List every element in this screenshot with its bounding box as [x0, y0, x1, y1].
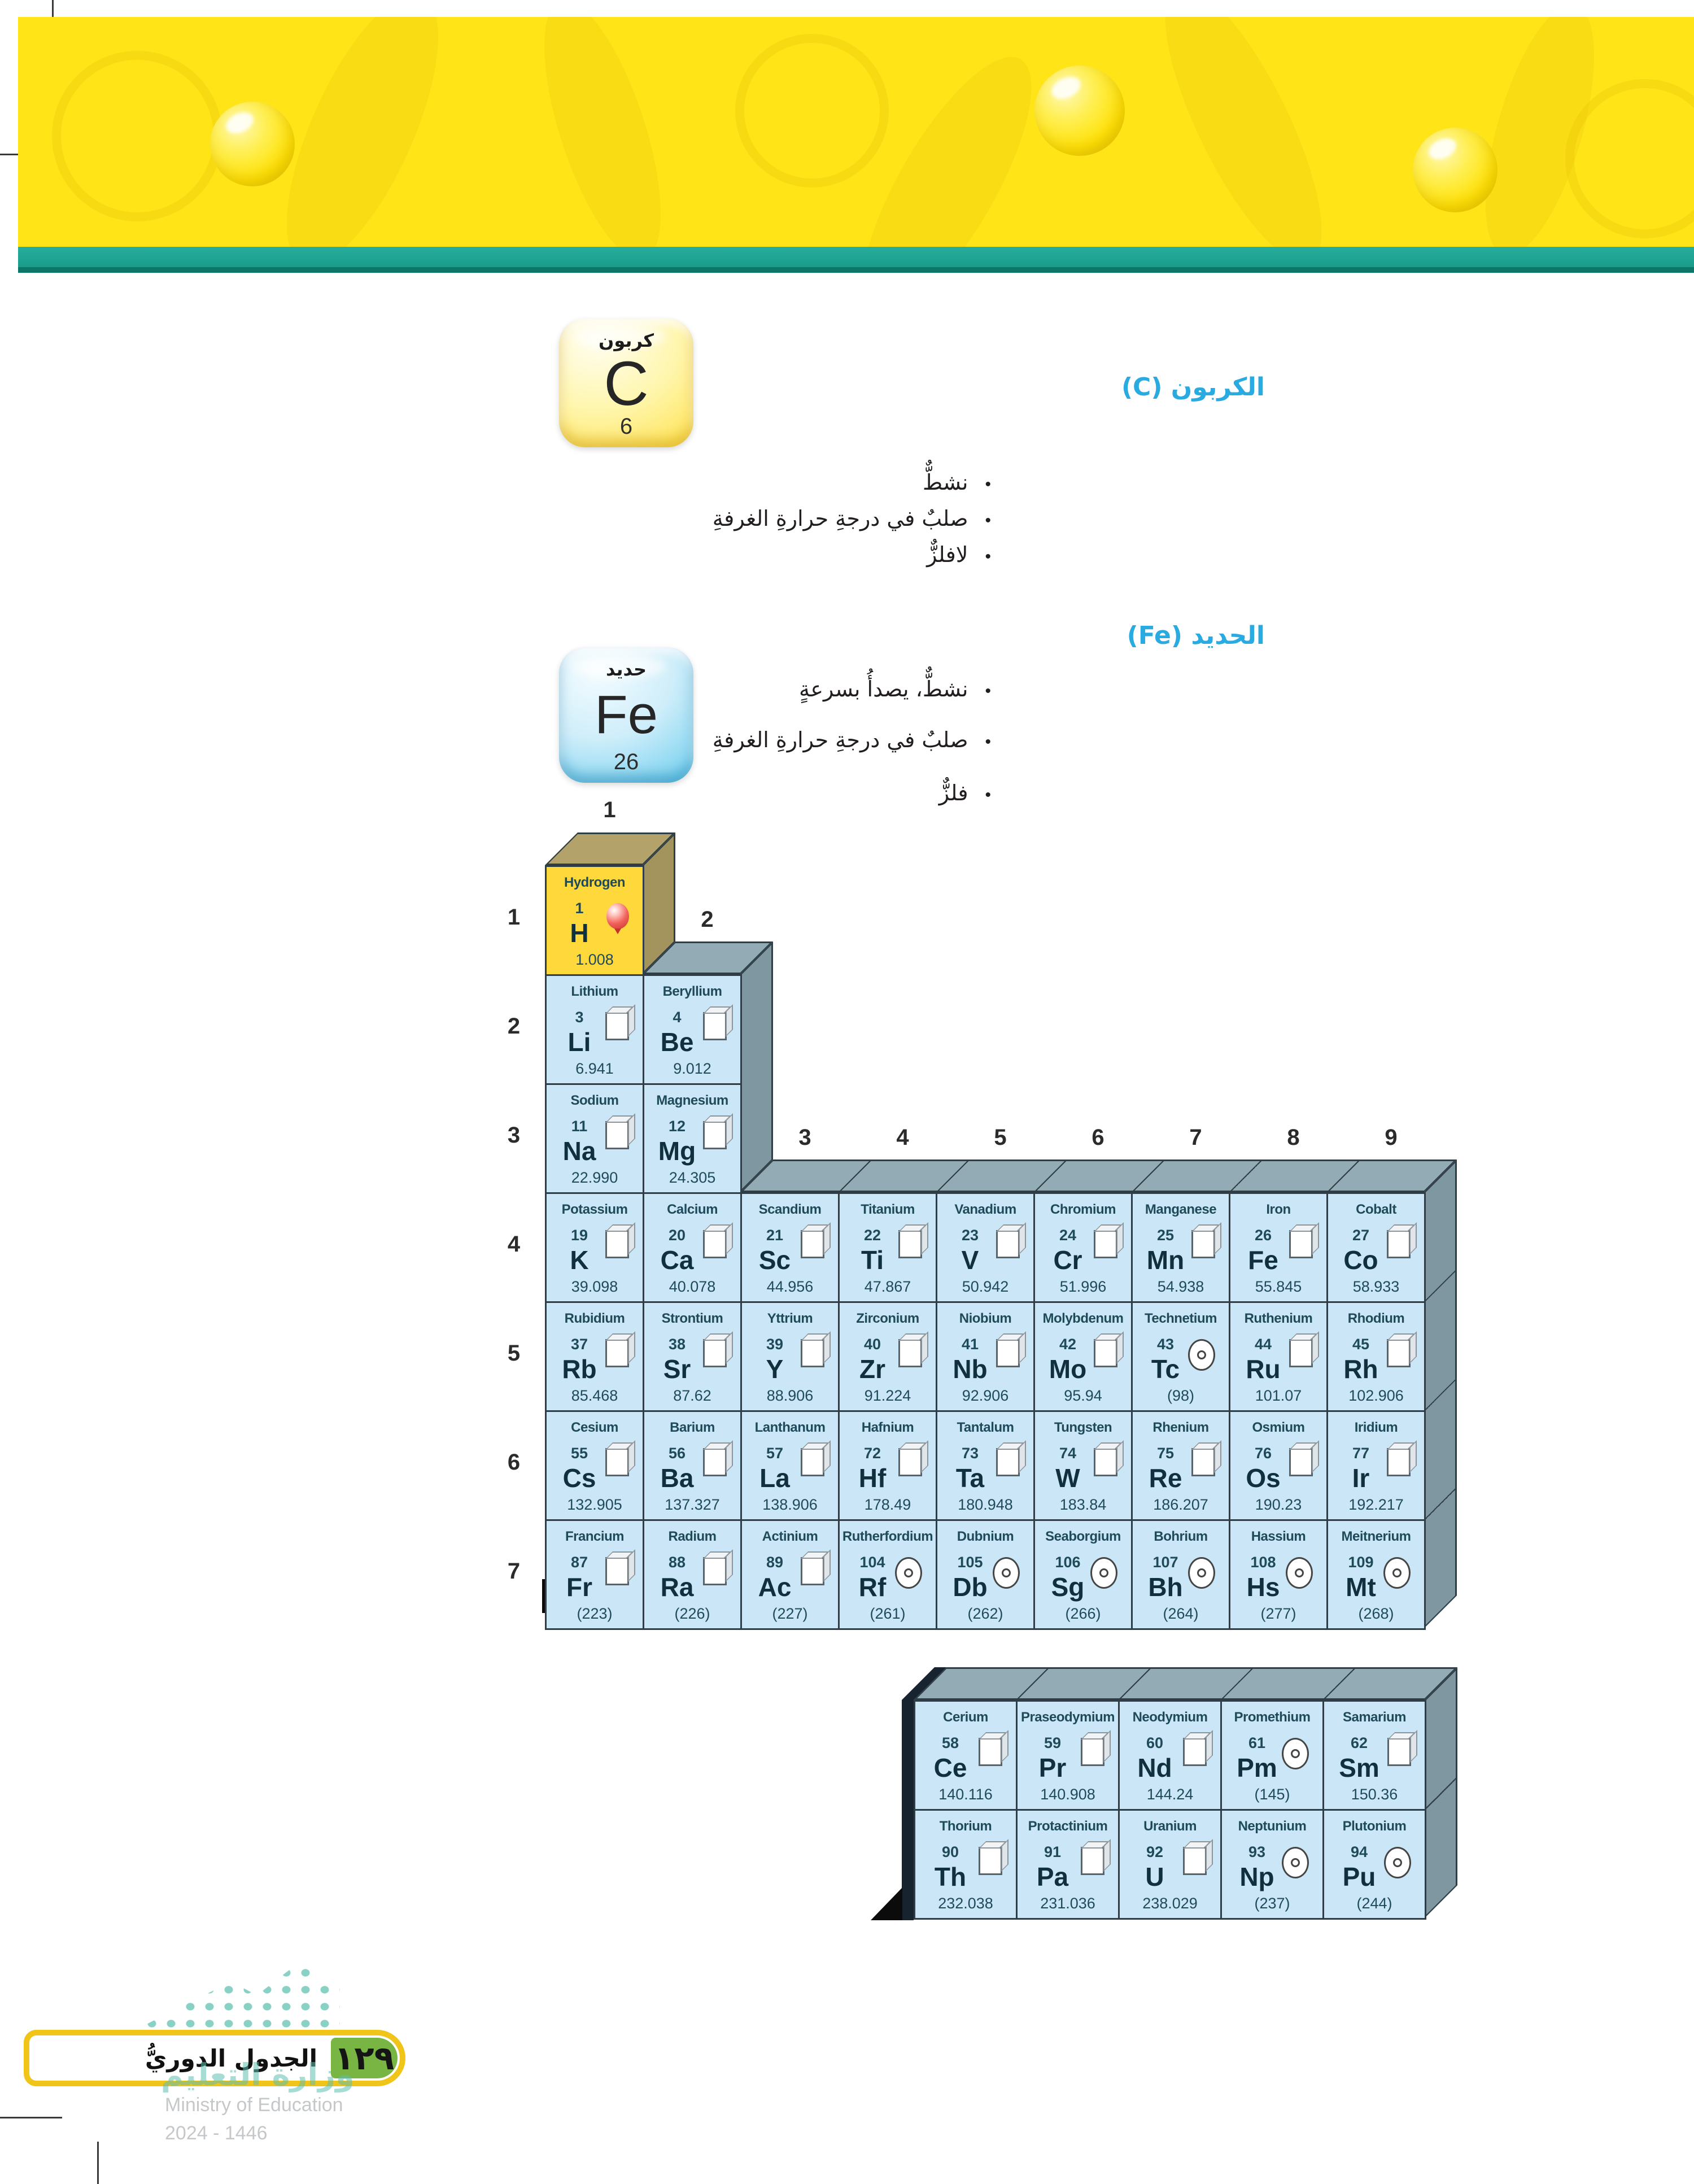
solid-cube-icon — [898, 1230, 922, 1258]
element-cell-V: Vanadium23V50.942 — [936, 1192, 1035, 1303]
inner-series-side-face — [1425, 1667, 1457, 1918]
element-symbol: Ir — [1328, 1463, 1394, 1493]
atomic-number: 24 — [1035, 1227, 1101, 1244]
element-symbol: K — [547, 1245, 612, 1275]
element-cell-U: Uranium92U238.029 — [1118, 1809, 1222, 1920]
atomic-number: 1 — [547, 900, 612, 917]
atomic-number: 74 — [1035, 1445, 1101, 1462]
atomic-mass: (264) — [1133, 1605, 1229, 1623]
atomic-number: 40 — [840, 1336, 905, 1353]
atomic-number: 25 — [1133, 1227, 1198, 1244]
solid-cube-icon — [801, 1448, 824, 1476]
atomic-mass: 150.36 — [1324, 1786, 1425, 1803]
atomic-mass: 238.029 — [1120, 1895, 1220, 1912]
element-symbol: Os — [1230, 1463, 1296, 1493]
element-name: Praseodymium — [1018, 1710, 1118, 1725]
element-symbol: La — [742, 1463, 807, 1493]
element-cell-Ir: Iridium77Ir192.217 — [1326, 1410, 1426, 1521]
element-cell-Pm: Promethium61Pm(145) — [1220, 1700, 1324, 1811]
solid-cube-icon — [605, 1230, 629, 1258]
element-name: Dubnium — [937, 1529, 1033, 1545]
solid-cube-icon — [605, 1012, 629, 1040]
solid-cube-icon — [1183, 1738, 1207, 1766]
element-cell-Mn: Manganese25Mn54.938 — [1131, 1192, 1230, 1303]
element-symbol: Ti — [840, 1245, 905, 1275]
element-name: Chromium — [1035, 1202, 1131, 1218]
atomic-mass: (223) — [547, 1605, 643, 1623]
element-name: Actinium — [742, 1529, 838, 1545]
atomic-mass: 186.207 — [1133, 1496, 1229, 1514]
atomic-number: 37 — [547, 1336, 612, 1353]
synthetic-bullseye-icon — [1282, 1847, 1309, 1878]
element-symbol: Rb — [547, 1354, 612, 1384]
element-cell-Pu: Plutonium94Pu(244) — [1322, 1809, 1426, 1920]
atomic-mass: 88.906 — [742, 1387, 838, 1405]
element-symbol: Pr — [1018, 1753, 1088, 1783]
element-symbol: Re — [1133, 1463, 1198, 1493]
atomic-number: 88 — [644, 1554, 710, 1571]
element-name: Uranium — [1120, 1819, 1220, 1834]
solid-cube-icon — [1191, 1448, 1215, 1476]
atomic-mass: 92.906 — [937, 1387, 1033, 1405]
solid-cube-icon — [703, 1012, 727, 1040]
atomic-number: 73 — [937, 1445, 1003, 1462]
element-cell-K: Potassium19K39.098 — [545, 1192, 644, 1303]
element-symbol: Nd — [1120, 1753, 1190, 1783]
atomic-mass: 132.905 — [547, 1496, 643, 1514]
element-cell-Co: Cobalt27Co58.933 — [1326, 1192, 1426, 1303]
atomic-number: 91 — [1018, 1843, 1088, 1861]
solid-cube-icon — [996, 1339, 1020, 1367]
solid-cube-icon — [1094, 1230, 1117, 1258]
atomic-number: 19 — [547, 1227, 612, 1244]
element-symbol: Np — [1222, 1862, 1292, 1892]
solid-cube-icon — [1387, 1230, 1411, 1258]
atomic-number: 93 — [1222, 1843, 1292, 1861]
group-label-3: 3 — [788, 1125, 822, 1150]
element-name: Lithium — [547, 984, 643, 1000]
synthetic-bullseye-icon — [1188, 1557, 1215, 1589]
element-symbol: Pa — [1018, 1862, 1088, 1892]
ministry-watermark-arabic: وزارة التعليم — [161, 2057, 355, 2093]
atomic-number: 39 — [742, 1336, 807, 1353]
element-cell-Ta: Tantalum73Ta180.948 — [936, 1410, 1035, 1521]
solid-cube-icon — [1191, 1230, 1215, 1258]
element-symbol: Zr — [840, 1354, 905, 1384]
atomic-mass: 24.305 — [644, 1169, 740, 1187]
atomic-number: 55 — [547, 1445, 612, 1462]
element-symbol: Cs — [547, 1463, 612, 1493]
element-cell-Be: Beryllium4Be9.012 — [643, 974, 742, 1085]
element-cell-Sm: Samarium62Sm150.36 — [1322, 1700, 1426, 1811]
atomic-number: 72 — [840, 1445, 905, 1462]
element-symbol: V — [937, 1245, 1003, 1275]
element-cell-Fe: Iron26Fe55.845 — [1229, 1192, 1328, 1303]
element-symbol: Ba — [644, 1463, 710, 1493]
atomic-mass: 50.942 — [937, 1278, 1033, 1296]
atomic-number: 90 — [915, 1843, 985, 1861]
transition-block-top-face — [740, 1159, 1457, 1192]
solid-cube-icon — [979, 1847, 1002, 1875]
solid-cube-icon — [703, 1230, 727, 1258]
element-name: Hafnium — [840, 1420, 936, 1436]
element-cell-Mo: Molybdenum42Mo95.94 — [1033, 1301, 1133, 1412]
atomic-mass: 54.938 — [1133, 1278, 1229, 1296]
element-symbol: Fe — [1230, 1245, 1296, 1275]
atomic-mass: 137.327 — [644, 1496, 740, 1514]
period-label-1: 1 — [497, 905, 531, 930]
synthetic-bullseye-icon — [1384, 1847, 1411, 1878]
element-symbol: Co — [1328, 1245, 1394, 1275]
element-cell-Sc: Scandium21Sc44.956 — [740, 1192, 840, 1303]
atomic-mass: 6.941 — [547, 1060, 643, 1078]
solid-cube-icon — [1289, 1339, 1313, 1367]
element-cell-Ru: Ruthenium44Ru101.07 — [1229, 1301, 1328, 1412]
group-label-7: 7 — [1179, 1125, 1213, 1150]
solid-cube-icon — [605, 1121, 629, 1149]
solid-cube-icon — [703, 1448, 727, 1476]
solid-cube-icon — [1081, 1738, 1104, 1766]
element-cell-Hf: Hafnium72Hf178.49 — [838, 1410, 937, 1521]
element-name: Hydrogen — [547, 875, 643, 891]
atomic-mass: (244) — [1324, 1895, 1425, 1912]
ministry-watermark-year: 2024 - 1446 — [165, 2122, 268, 2144]
element-cell-Pa: Protactinium91Pa231.036 — [1016, 1809, 1120, 1920]
atomic-mass: (237) — [1222, 1895, 1322, 1912]
element-cell-Re: Rhenium75Re186.207 — [1131, 1410, 1230, 1521]
atomic-mass: (226) — [644, 1605, 740, 1623]
element-name: Neodymium — [1120, 1710, 1220, 1725]
element-cell-H: Hydrogen1H1.008 — [545, 865, 644, 976]
group-label-5: 5 — [984, 1125, 1018, 1150]
element-cell-Li: Lithium3Li6.941 — [545, 974, 644, 1085]
atomic-number: 21 — [742, 1227, 807, 1244]
atomic-number: 89 — [742, 1554, 807, 1571]
group-label-8: 8 — [1277, 1125, 1311, 1150]
solid-cube-icon — [1183, 1847, 1207, 1875]
element-name: Lanthanum — [742, 1420, 838, 1436]
period-label-2: 2 — [497, 1014, 531, 1039]
atomic-number: 56 — [644, 1445, 710, 1462]
atomic-mass: (261) — [840, 1605, 936, 1623]
atomic-mass: 183.84 — [1035, 1496, 1131, 1514]
element-name: Magnesium — [644, 1093, 740, 1109]
element-symbol: Mo — [1035, 1354, 1101, 1384]
atomic-number: 11 — [547, 1118, 612, 1135]
atomic-number: 57 — [742, 1445, 807, 1462]
element-name: Thorium — [915, 1819, 1016, 1834]
element-symbol: Rh — [1328, 1354, 1394, 1384]
group-label-2: 2 — [691, 907, 724, 932]
atomic-mass: 39.098 — [547, 1278, 643, 1296]
element-cell-Mg: Magnesium12Mg24.305 — [643, 1083, 742, 1194]
period-label-3: 3 — [497, 1123, 531, 1148]
element-name: Rubidium — [547, 1311, 643, 1327]
solid-cube-icon — [1094, 1448, 1117, 1476]
element-cell-Np: Neptunium93Np(237) — [1220, 1809, 1324, 1920]
element-name: Radium — [644, 1529, 740, 1545]
element-symbol: Ru — [1230, 1354, 1296, 1384]
element-name: Zirconium — [840, 1311, 936, 1327]
atomic-number: 59 — [1018, 1734, 1088, 1752]
element-name: Iridium — [1328, 1420, 1424, 1436]
element-name: Manganese — [1133, 1202, 1229, 1218]
element-cell-Os: Osmium76Os190.23 — [1229, 1410, 1328, 1521]
element-name: Plutonium — [1324, 1819, 1425, 1834]
atomic-number: 26 — [1230, 1227, 1296, 1244]
group-label-9: 9 — [1374, 1125, 1408, 1150]
atomic-mass: 101.07 — [1230, 1387, 1326, 1405]
element-symbol: W — [1035, 1463, 1101, 1493]
atomic-mass: (268) — [1328, 1605, 1424, 1623]
synthetic-bullseye-icon — [993, 1557, 1020, 1589]
atomic-number: 38 — [644, 1336, 710, 1353]
element-name: Cerium — [915, 1710, 1016, 1725]
atomic-mass: (266) — [1035, 1605, 1131, 1623]
element-name: Molybdenum — [1035, 1311, 1131, 1327]
atomic-mass: (262) — [937, 1605, 1033, 1623]
atomic-mass: 138.906 — [742, 1496, 838, 1514]
element-name: Protactinium — [1018, 1819, 1118, 1834]
atomic-mass: 9.012 — [644, 1060, 740, 1078]
group9-side-face — [1424, 1159, 1457, 1628]
element-name: Osmium — [1230, 1420, 1326, 1436]
solid-cube-icon — [1289, 1230, 1313, 1258]
element-cell-Rb: Rubidium37Rb85.468 — [545, 1301, 644, 1412]
atomic-mass: (145) — [1222, 1786, 1322, 1803]
element-name: Strontium — [644, 1311, 740, 1327]
atomic-mass: 1.008 — [547, 951, 643, 969]
atomic-mass: 140.908 — [1018, 1786, 1118, 1803]
synthetic-bullseye-icon — [1383, 1557, 1411, 1589]
element-cell-Ca: Calcium20Ca40.078 — [643, 1192, 742, 1303]
atomic-mass: 232.038 — [915, 1895, 1016, 1912]
element-name: Rhenium — [1133, 1420, 1229, 1436]
atomic-number: 94 — [1324, 1843, 1394, 1861]
group-label-4: 4 — [886, 1125, 920, 1150]
element-cell-Pr: Praseodymium59Pr140.908 — [1016, 1700, 1120, 1811]
atomic-number: 92 — [1120, 1843, 1190, 1861]
element-cell-Y: Yttrium39Y88.906 — [740, 1301, 840, 1412]
solid-cube-icon — [1387, 1339, 1411, 1367]
atomic-mass: (98) — [1133, 1387, 1229, 1405]
element-name: Tungsten — [1035, 1420, 1131, 1436]
atomic-number: 87 — [547, 1554, 612, 1571]
element-cell-Th: Thorium90Th232.038 — [914, 1809, 1018, 1920]
element-symbol: Pm — [1222, 1753, 1292, 1783]
solid-cube-icon — [801, 1557, 824, 1585]
element-symbol: Ca — [644, 1245, 710, 1275]
element-name: Iron — [1230, 1202, 1326, 1218]
element-cell-Bh: Bohrium107Bh(264) — [1131, 1519, 1230, 1630]
element-symbol: Cr — [1035, 1245, 1101, 1275]
solid-cube-icon — [703, 1121, 727, 1149]
element-symbol: Mg — [644, 1136, 710, 1166]
solid-cube-icon — [996, 1230, 1020, 1258]
solid-cube-icon — [996, 1448, 1020, 1476]
element-name: Promethium — [1222, 1710, 1322, 1725]
atomic-mass: 180.948 — [937, 1496, 1033, 1514]
element-cell-Sr: Strontium38Sr87.62 — [643, 1301, 742, 1412]
atomic-number: 27 — [1328, 1227, 1394, 1244]
element-name: Cesium — [547, 1420, 643, 1436]
solid-cube-icon — [605, 1448, 629, 1476]
solid-cube-icon — [703, 1557, 727, 1585]
element-symbol: Pu — [1324, 1862, 1394, 1892]
group-label-6: 6 — [1081, 1125, 1115, 1150]
atomic-mass: 231.036 — [1018, 1895, 1118, 1912]
element-cell-Nd: Neodymium60Nd144.24 — [1118, 1700, 1222, 1811]
atomic-number: 76 — [1230, 1445, 1296, 1462]
atomic-mass: 95.94 — [1035, 1387, 1131, 1405]
solid-cube-icon — [605, 1557, 629, 1585]
element-cell-Mt: Meitnerium109Mt(268) — [1326, 1519, 1426, 1630]
element-name: Beryllium — [644, 984, 740, 1000]
element-name: Yttrium — [742, 1311, 838, 1327]
element-cell-Ac: Actinium89Ac(227) — [740, 1519, 840, 1630]
solid-cube-icon — [1387, 1738, 1411, 1766]
element-name: Scandium — [742, 1202, 838, 1218]
solid-cube-icon — [1387, 1448, 1411, 1476]
atomic-mass: 178.49 — [840, 1496, 936, 1514]
element-name: Rutherfordium — [840, 1529, 936, 1545]
atomic-number: 44 — [1230, 1336, 1296, 1353]
atomic-number: 12 — [644, 1118, 710, 1135]
element-name: Rhodium — [1328, 1311, 1424, 1327]
element-symbol: H — [547, 918, 612, 948]
gas-balloon-icon — [606, 903, 629, 929]
atomic-number: 3 — [547, 1009, 612, 1026]
atomic-number: 75 — [1133, 1445, 1198, 1462]
atomic-mass: 58.933 — [1328, 1278, 1424, 1296]
group2-side-face — [740, 941, 773, 1192]
atomic-number: 58 — [915, 1734, 985, 1752]
solid-cube-icon — [898, 1448, 922, 1476]
element-cell-Ce: Cerium58Ce140.116 — [914, 1700, 1018, 1811]
atomic-mass: 87.62 — [644, 1387, 740, 1405]
element-cell-Na: Sodium11Na22.990 — [545, 1083, 644, 1194]
atomic-number: 23 — [937, 1227, 1003, 1244]
atomic-mass: 102.906 — [1328, 1387, 1424, 1405]
ministry-watermark-english: Ministry of Education — [165, 2094, 343, 2116]
atomic-mass: 40.078 — [644, 1278, 740, 1296]
element-cell-La: Lanthanum57La138.906 — [740, 1410, 840, 1521]
element-cell-Nb: Niobium41Nb92.906 — [936, 1301, 1035, 1412]
element-name: Sodium — [547, 1093, 643, 1109]
solid-cube-icon — [979, 1738, 1002, 1766]
element-name: Neptunium — [1222, 1819, 1322, 1834]
element-name: Titanium — [840, 1202, 936, 1218]
element-cell-Cs: Cesium55Cs132.905 — [545, 1410, 644, 1521]
element-symbol: Li — [547, 1027, 612, 1057]
atomic-mass: 190.23 — [1230, 1496, 1326, 1514]
atomic-mass: 140.116 — [915, 1786, 1016, 1803]
element-cell-Hs: Hassium108Hs(277) — [1229, 1519, 1328, 1630]
element-cell-Tc: Technetium43Tc(98) — [1131, 1301, 1230, 1412]
element-cell-Fr: Francium87Fr(223) — [545, 1519, 644, 1630]
element-symbol: Ra — [644, 1572, 710, 1602]
synthetic-bullseye-icon — [1090, 1557, 1117, 1589]
element-name: Tantalum — [937, 1420, 1033, 1436]
group-label-1: 1 — [593, 797, 627, 823]
element-symbol: Ta — [937, 1463, 1003, 1493]
element-name: Bohrium — [1133, 1529, 1229, 1545]
atomic-number: 45 — [1328, 1336, 1394, 1353]
atomic-mass: 144.24 — [1120, 1786, 1220, 1803]
inner-series-left-bar — [902, 1700, 914, 1920]
solid-cube-icon — [605, 1339, 629, 1367]
period-label-5: 5 — [497, 1341, 531, 1366]
element-symbol: Ce — [915, 1753, 985, 1783]
period-label-6: 6 — [497, 1450, 531, 1475]
solid-cube-icon — [1081, 1847, 1104, 1875]
element-symbol: Sr — [644, 1354, 710, 1384]
period-label-7: 7 — [497, 1559, 531, 1584]
solid-cube-icon — [1094, 1339, 1117, 1367]
atomic-number: 20 — [644, 1227, 710, 1244]
solid-cube-icon — [801, 1230, 824, 1258]
element-cell-Ti: Titanium22Ti47.867 — [838, 1192, 937, 1303]
element-name: Vanadium — [937, 1202, 1033, 1218]
element-symbol: Hf — [840, 1463, 905, 1493]
atomic-number: 42 — [1035, 1336, 1101, 1353]
synthetic-bullseye-icon — [1188, 1339, 1215, 1371]
atomic-mass: (277) — [1230, 1605, 1326, 1623]
atomic-mass: 47.867 — [840, 1278, 936, 1296]
element-name: Barium — [644, 1420, 740, 1436]
period-label-4: 4 — [497, 1232, 531, 1257]
element-name: Calcium — [644, 1202, 740, 1218]
element-symbol: Ac — [742, 1572, 807, 1602]
element-symbol: Y — [742, 1354, 807, 1384]
element-name: Cobalt — [1328, 1202, 1424, 1218]
element-symbol: Th — [915, 1862, 985, 1892]
element-cell-Rf: Rutherfordium104Rf(261) — [838, 1519, 937, 1630]
element-symbol: Sc — [742, 1245, 807, 1275]
atomic-mass: 55.845 — [1230, 1278, 1326, 1296]
element-name: Samarium — [1324, 1710, 1425, 1725]
atomic-mass: 85.468 — [547, 1387, 643, 1405]
atomic-mass: 91.224 — [840, 1387, 936, 1405]
atomic-mass: (227) — [742, 1605, 838, 1623]
element-symbol: Fr — [547, 1572, 612, 1602]
element-name: Niobium — [937, 1311, 1033, 1327]
element-symbol: Nb — [937, 1354, 1003, 1384]
element-symbol: Mn — [1133, 1245, 1198, 1275]
atomic-number: 62 — [1324, 1734, 1394, 1752]
element-cell-Ba: Barium56Ba137.327 — [643, 1410, 742, 1521]
atomic-mass: 51.996 — [1035, 1278, 1131, 1296]
atomic-number: 60 — [1120, 1734, 1190, 1752]
periodic-table: Hydrogen1H1.008Lithium3Li6.941Beryllium4… — [0, 0, 1694, 2184]
element-symbol: Sm — [1324, 1753, 1394, 1783]
element-cell-Rh: Rhodium45Rh102.906 — [1326, 1301, 1426, 1412]
element-cell-Ra: Radium88Ra(226) — [643, 1519, 742, 1630]
element-name: Hassium — [1230, 1529, 1326, 1545]
element-symbol: Be — [644, 1027, 710, 1057]
element-name: Meitnerium — [1328, 1529, 1424, 1545]
atomic-number: 4 — [644, 1009, 710, 1026]
element-cell-Db: Dubnium105Db(262) — [936, 1519, 1035, 1630]
atomic-mass: 44.956 — [742, 1278, 838, 1296]
atomic-mass: 22.990 — [547, 1169, 643, 1187]
synthetic-bullseye-icon — [1282, 1738, 1309, 1769]
atomic-number: 22 — [840, 1227, 905, 1244]
element-symbol: Na — [547, 1136, 612, 1166]
atomic-number: 61 — [1222, 1734, 1292, 1752]
synthetic-bullseye-icon — [1286, 1557, 1313, 1589]
element-name: Potassium — [547, 1202, 643, 1218]
